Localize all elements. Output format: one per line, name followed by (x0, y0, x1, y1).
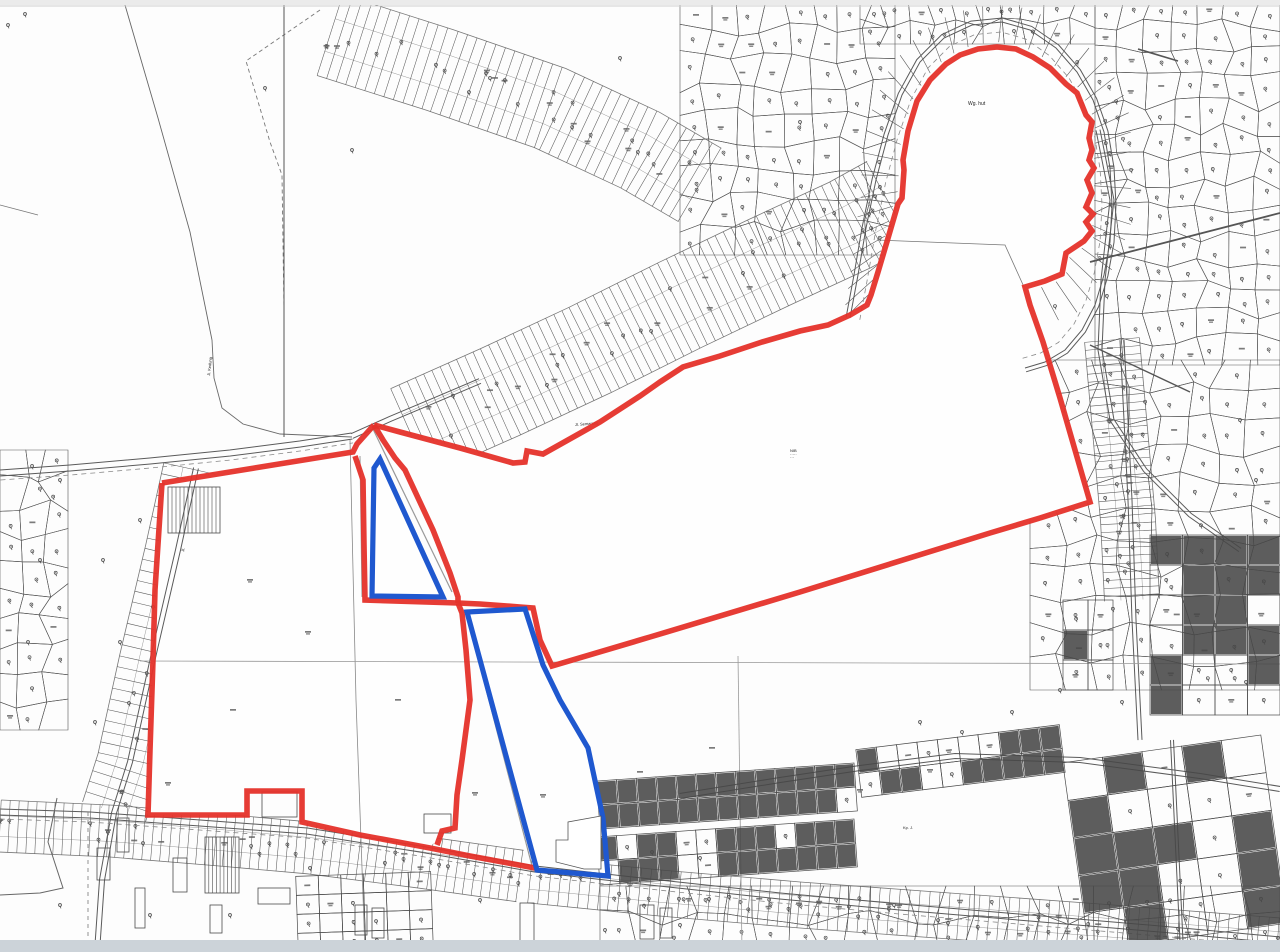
parcel-number-blob (515, 386, 521, 388)
parcel-number-blob (131, 840, 137, 842)
parcel-number-blob (249, 836, 255, 838)
parcel-number-blob (1129, 247, 1135, 249)
parcel-outline (258, 888, 290, 904)
parcel-number-blob (986, 744, 992, 746)
parcel-number-blob (849, 44, 855, 46)
map-canvas: Wg. hutJl. SemarangNIB········Jl. Kedung… (0, 0, 1280, 952)
scan-edge-bottom (0, 940, 1280, 952)
parcel-number-blob (485, 406, 491, 408)
parcel-number-blob (489, 872, 495, 874)
dense-parcel-block (597, 819, 858, 885)
parcel-number-blob (1102, 432, 1108, 434)
parcel-number-blob (656, 173, 662, 175)
parcel-number-blob (905, 754, 911, 756)
dense-parcel-block (1063, 600, 1113, 690)
parcel-outline (135, 888, 145, 928)
scan-edge-top (0, 0, 1280, 5)
parcel-number-blob (1116, 531, 1122, 533)
parcel-number-blob (1054, 33, 1060, 35)
parcel-number-blob (142, 728, 148, 730)
parcel-number-blob (722, 17, 728, 19)
map-label: Kp. J. (903, 825, 913, 830)
parcel-number-blob (240, 838, 246, 840)
parcel-number-blob (1185, 137, 1191, 139)
parcel-number-blob (417, 880, 423, 882)
parcel-number-blob (1125, 474, 1131, 476)
parcel-number-blob (1194, 931, 1200, 933)
parcel-number-blob (625, 148, 631, 150)
parcel-number-blob (1167, 522, 1173, 524)
parcel-number-blob (547, 102, 553, 104)
parcel-number-blob (1098, 614, 1104, 616)
parcel-number-blob (550, 353, 556, 355)
parcel-number-blob (1017, 933, 1023, 935)
parcel-number-blob (709, 747, 715, 749)
parcel-number-blob (747, 286, 753, 288)
map-label: Jl. Kedung (206, 357, 213, 376)
parcel-number-blob (1133, 491, 1139, 493)
parcel-outline (262, 792, 297, 817)
parcel-number-blob (585, 140, 591, 142)
parcel-outline (640, 905, 654, 939)
parcel-number-blob (1107, 347, 1113, 349)
parcel-number-blob (640, 930, 646, 932)
parcel-number-blob (1228, 699, 1234, 701)
parcel-number-blob (1095, 923, 1101, 925)
parcel-number-blob (721, 214, 727, 216)
parcel-number-blob (1073, 898, 1079, 900)
parcel-number-blob (1258, 613, 1264, 615)
parcel-number-blob (946, 749, 952, 751)
parcel-number-blob (502, 80, 508, 82)
parcel-number-blob (1208, 319, 1214, 321)
parcel-number-blob (305, 631, 311, 633)
parcel-number-blob (1187, 353, 1193, 355)
parcel-number-blob (1158, 85, 1164, 87)
parcel-number-blob (1213, 84, 1219, 86)
parcel-number-blob (571, 123, 577, 125)
parcel-number-blob (1102, 192, 1108, 194)
parcel-number-blob (492, 77, 498, 79)
parcel-number-blob (718, 44, 724, 46)
parcel-number-blob (1056, 915, 1062, 917)
parcel-number-blob (766, 131, 772, 133)
parcel-number-blob (1129, 59, 1135, 61)
parcel-number-blob (221, 842, 227, 844)
parcel-number-blob (919, 12, 925, 14)
parcel-number-blob (1045, 613, 1051, 615)
parcel-number-blob (1246, 793, 1252, 796)
parcel-number-blob (1213, 195, 1219, 197)
parcel-number-blob (1238, 92, 1244, 94)
parcel-number-blob (1240, 247, 1246, 249)
parcel-number-blob (836, 906, 842, 908)
parcel-number-blob (1239, 348, 1245, 350)
parcel-number-blob (540, 794, 546, 796)
parcel-number-blob (604, 322, 610, 324)
map-label: Wg. hut (968, 101, 986, 107)
parcel-number-blob (756, 898, 762, 900)
parcel-number-blob (693, 14, 699, 16)
parcel-number-blob (584, 342, 590, 344)
parcel-number-blob (739, 72, 745, 74)
parcel-outline (372, 908, 384, 938)
parcel-number-blob (247, 579, 253, 581)
parcel-number-blob (705, 864, 711, 866)
parcel-number-blob (464, 861, 470, 863)
parcel-outline (97, 848, 110, 880)
parcel-number-blob (507, 876, 513, 878)
parcel-outline (117, 818, 129, 852)
parcel-number-blob (304, 884, 310, 886)
parcel-number-blob (1229, 528, 1235, 530)
parcel-number-blob (748, 43, 754, 45)
parcel-number-blob (1103, 36, 1109, 38)
parcel-number-blob (324, 45, 330, 47)
parcel-number-blob (718, 126, 724, 128)
scanned-cadastral-map: Wg. hutJl. SemarangNIB········Jl. Kedung… (0, 0, 1280, 952)
parcel-number-blob (165, 782, 171, 784)
parcel-number-blob (1135, 190, 1141, 192)
parcel-number-blob (623, 128, 629, 130)
parcel-number-blob (1163, 609, 1169, 611)
parcel-number-blob (1264, 501, 1270, 503)
parcel-number-blob (637, 771, 643, 773)
parcel-number-blob (1174, 614, 1180, 616)
parcel-number-blob (684, 842, 690, 844)
parcel-number-blob (334, 45, 340, 47)
parcel-number-blob (1206, 8, 1212, 10)
parcel-number-blob (1263, 219, 1269, 221)
dense-parcel-block (856, 725, 1065, 798)
parcel-number-blob (927, 769, 933, 771)
parcel-number-blob (396, 938, 402, 940)
parcel-number-blob (7, 715, 13, 717)
parcel-number-blob (6, 630, 12, 632)
parcel-number-blob (1073, 674, 1079, 676)
parcel-number-blob (766, 211, 772, 213)
parcel-number-blob (418, 866, 424, 868)
parcel-number-blob (857, 789, 863, 791)
parcel-number-blob (769, 72, 775, 74)
parcel-number-blob (702, 277, 708, 279)
parcel-outline (210, 905, 222, 933)
parcel-number-blob (484, 70, 490, 72)
parcel-number-blob (686, 898, 692, 900)
parcel-number-blob (796, 902, 802, 904)
parcel-number-blob (707, 307, 713, 309)
parcel-number-blob (957, 900, 963, 902)
parcel-number-blob (1185, 116, 1191, 118)
parcel-number-blob (985, 932, 991, 934)
parcel-number-blob (1128, 90, 1134, 92)
parcel-number-blob (230, 709, 236, 711)
parcel-number-blob (50, 626, 56, 628)
parcel-number-blob (158, 841, 164, 843)
parcel-number-blob (395, 699, 401, 701)
parcel-outline (520, 903, 534, 943)
parcel-number-blob (472, 792, 478, 794)
parcel-outline (660, 908, 672, 938)
parcel-number-blob (824, 155, 830, 157)
parcel-number-blob (853, 129, 859, 131)
parcel-number-blob (1171, 429, 1177, 431)
parcel-number-blob (487, 389, 493, 391)
parcel-number-blob (551, 379, 557, 381)
parcel-number-blob (327, 903, 333, 905)
parcel-number-blob (654, 322, 660, 324)
dense-parcel-block (597, 763, 858, 829)
parcel-number-blob (29, 522, 35, 524)
parcel-number-blob (824, 43, 830, 45)
